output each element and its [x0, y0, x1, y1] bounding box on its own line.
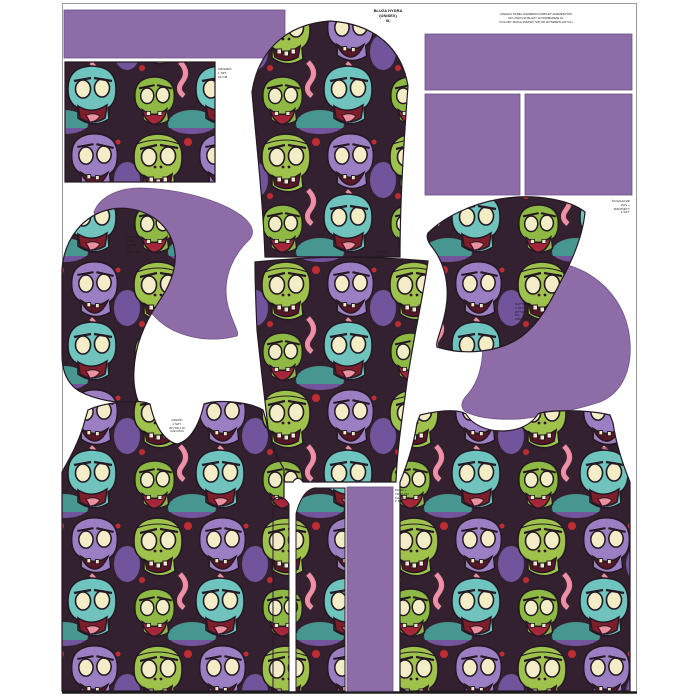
drawstring-strip-narrow-piece: [273, 497, 289, 691]
drawstring-strip-wide-piece: [296, 488, 345, 691]
back-bodice-piece: [400, 411, 630, 691]
piece-label-hood-right: KAPTUR B 2 SZT. WYTNIJ PO OBRYSIE: [515, 303, 531, 322]
ribbing-strip-purple-piece: [347, 487, 393, 691]
front-bodice-piece: [62, 402, 284, 691]
pocket-panel-piece: [65, 62, 215, 182]
ribbing-rect-top-piece: [425, 34, 632, 90]
piece-label-back: TYŁ 1 SZT. WYTNIJ W CAŁOŚCI: [602, 436, 630, 451]
piece-label-pocket: KIESZEŃ 1 SZT. 20 CM: [218, 68, 232, 79]
ribbing-rect-left-piece: [425, 94, 520, 195]
panel-notice: UWAGA! PANEL ZAWIERA KOMPLET ELEMENTÓW D…: [470, 13, 602, 25]
piece-label-hood-left: KAPTUR A 2 SZT. WYTNIJ PO OBRYSIE: [126, 236, 142, 255]
fabric-pattern-panel: BLUZA HYDRA (UNISEX) XL UWAGA! PANEL ZAW…: [0, 0, 700, 700]
piece-label-front: PRZÓD 1 SZT. WYTNIJ W CAŁOŚCI: [155, 419, 199, 434]
panel-canvas: [0, 0, 700, 700]
ribbing-rect-right-piece: [525, 94, 632, 195]
panel-title: BLUZA HYDRA (UNISEX) XL: [364, 8, 412, 24]
waistband-ribbon-piece: [64, 10, 285, 58]
upper-sleeve-piece: [252, 21, 408, 257]
piece-label-strips: PASKI + TROCZKI KAPTURA 2 SZT.: [395, 489, 410, 504]
lower-sleeve-piece: [255, 257, 428, 482]
piece-label-ribbing: ŚCIĄGACZE PAS + MANKIETY 2 SZT.: [602, 200, 630, 215]
piece-label-sleeve: RĘKAW 2 SZT.: [376, 251, 387, 259]
